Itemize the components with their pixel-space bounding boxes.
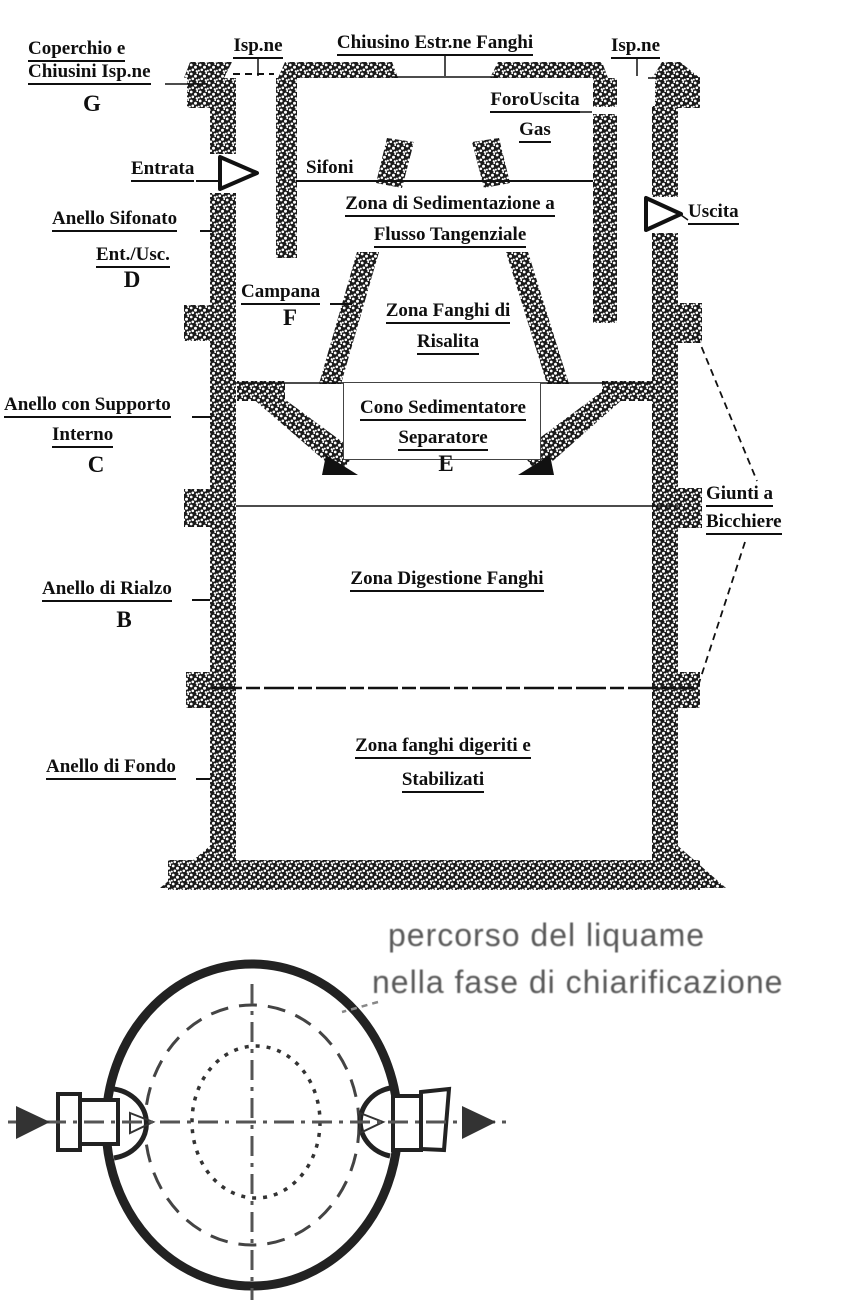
- right-wall-upper: [652, 106, 678, 197]
- label-anello-sifonato-1: Anello Sifonato: [52, 208, 217, 232]
- entrata-arrow: [220, 157, 257, 189]
- plan-caption-line-2: nella fase di chiarificazione: [372, 959, 783, 1005]
- label-anello-fondo: Anello di Fondo: [46, 756, 211, 780]
- label-anello-supporto-1: Anello con Supporto: [4, 394, 209, 418]
- lid-segment-right: [490, 62, 608, 78]
- plan-caption-line-1: percorso del liquame: [388, 912, 705, 958]
- label-foro-uscita-1: ForoUscita: [470, 89, 600, 113]
- label-letter-f: F: [270, 306, 310, 330]
- left-baffle: [276, 78, 297, 258]
- tank-floor: [168, 860, 700, 890]
- label-foro-uscita-2: Gas: [470, 119, 600, 143]
- label-anello-sifonato-2: Ent./Usc.: [96, 244, 206, 268]
- right-baffle-below-gas-hole: [593, 114, 617, 323]
- label-campana: Campana: [241, 281, 351, 305]
- right-wall-main: [652, 233, 678, 862]
- right-joint-3: [676, 672, 700, 708]
- left-wall-main: [210, 193, 236, 862]
- right-joint-1: [678, 303, 702, 343]
- label-giunti-1: Giunti a: [706, 483, 806, 507]
- label-anello-rialzo: Anello di Rialzo: [42, 578, 207, 602]
- label-zona-sedimentazione-1: Zona di Sedimentazione a: [315, 193, 585, 217]
- label-zona-fanghi-2: Risalita: [368, 331, 528, 355]
- left-joint-2: [184, 489, 214, 527]
- label-coperchio-1: Coperchio e: [28, 38, 198, 62]
- label-letter-b: B: [104, 608, 144, 632]
- label-letter-d: D: [112, 268, 152, 292]
- label-letter-c: C: [76, 453, 116, 477]
- label-ispne-left: Isp.ne: [213, 35, 303, 59]
- uscita-arrow: [646, 198, 681, 230]
- label-ispne-right-text: Isp.ne: [611, 35, 660, 59]
- left-wall-upper: [210, 106, 236, 154]
- right-wall-top: [655, 78, 700, 108]
- right-joint-2: [678, 488, 702, 528]
- lid-cap-right: [652, 62, 700, 78]
- label-cono-1: Cono Sedimentatore: [345, 397, 541, 421]
- label-cono-2: Separatore: [345, 427, 541, 451]
- label-ispne-left-text: Isp.ne: [233, 35, 282, 59]
- label-entrata: Entrata: [131, 158, 221, 182]
- label-zona-digestione: Zona Digestione Fanghi: [322, 568, 572, 592]
- left-joint-3: [186, 672, 213, 708]
- plan-outlet-pipe-cap: [421, 1089, 449, 1150]
- label-chiusino-text: Chiusino Estr.ne Fanghi: [337, 32, 533, 56]
- left-joint-1: [184, 305, 212, 341]
- plan-inflow-arrow: [16, 1106, 50, 1139]
- label-ispne-right: Isp.ne: [588, 35, 683, 59]
- label-sifoni: Sifoni: [306, 157, 386, 178]
- label-anello-supporto-2: Interno: [52, 424, 172, 448]
- giunti-leader-upper: [697, 336, 757, 481]
- label-chiusino: Chiusino Estr.ne Fanghi: [300, 32, 570, 56]
- uscita-tick: [681, 215, 688, 220]
- label-letter-e: E: [425, 452, 467, 476]
- label-zona-digeriti-1: Zona fanghi digeriti e: [328, 735, 558, 759]
- label-zona-digeriti-2: Stabilizati: [328, 769, 558, 793]
- plan-view: [8, 964, 506, 1300]
- imhoff-tank-schematic: Isp.ne Chiusino Estr.ne Fanghi Isp.ne Co…: [0, 0, 867, 1310]
- label-zona-fanghi-1: Zona Fanghi di: [368, 300, 528, 324]
- giunti-leader-lower: [698, 542, 745, 686]
- label-zona-sedimentazione-2: Flusso Tangenziale: [315, 224, 585, 248]
- plan-outflow-arrow: [462, 1106, 496, 1139]
- lid-segment-left: [278, 62, 398, 78]
- label-uscita: Uscita: [688, 201, 778, 225]
- label-letter-g: G: [72, 92, 112, 116]
- label-giunti-2: Bicchiere: [706, 511, 816, 535]
- cone-wall-left: [236, 384, 356, 474]
- label-coperchio-2: Chiusini Isp.ne: [28, 61, 208, 85]
